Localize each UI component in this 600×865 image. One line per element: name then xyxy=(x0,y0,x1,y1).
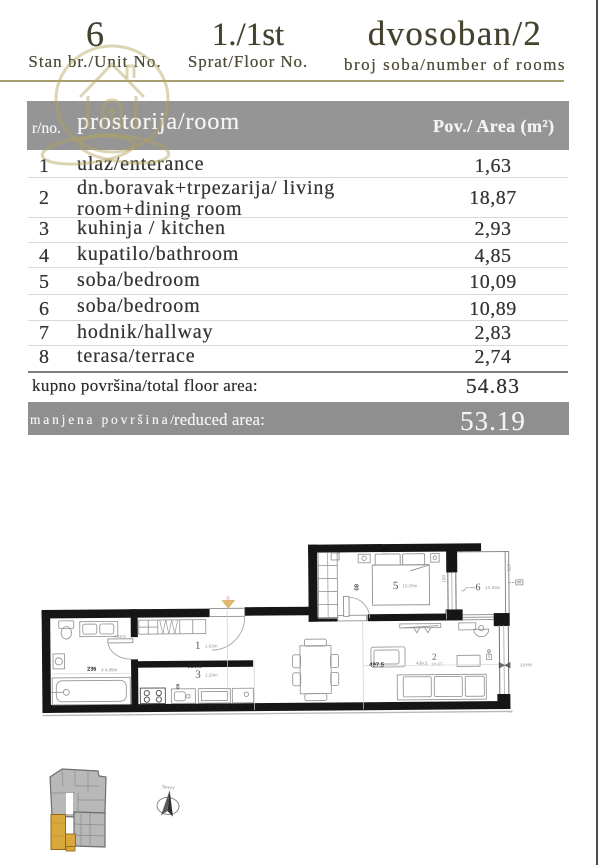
svg-text:60: 60 xyxy=(175,684,180,690)
svg-text:10.89m: 10.89m xyxy=(485,585,500,590)
svg-text:1: 1 xyxy=(195,640,201,652)
svg-text:2: 2 xyxy=(432,652,437,662)
svg-text:80: 80 xyxy=(352,584,358,591)
svg-text:275: 275 xyxy=(506,564,511,572)
svg-text:5: 5 xyxy=(393,580,399,592)
svg-text:220/90: 220/90 xyxy=(520,662,533,667)
svg-text:18.87: 18.87 xyxy=(431,662,443,667)
svg-text:4 4.85m: 4 4.85m xyxy=(101,667,118,672)
svg-text:10.09m: 10.09m xyxy=(402,583,417,588)
svg-text:1.63m: 1.63m xyxy=(205,644,218,649)
svg-text:2.93m: 2.93m xyxy=(205,672,218,677)
svg-text:160: 160 xyxy=(441,574,446,582)
svg-text:6: 6 xyxy=(475,582,480,593)
svg-text:Sever: Sever xyxy=(162,784,175,791)
svg-text:236: 236 xyxy=(87,667,96,673)
svg-text:3: 3 xyxy=(195,669,201,681)
